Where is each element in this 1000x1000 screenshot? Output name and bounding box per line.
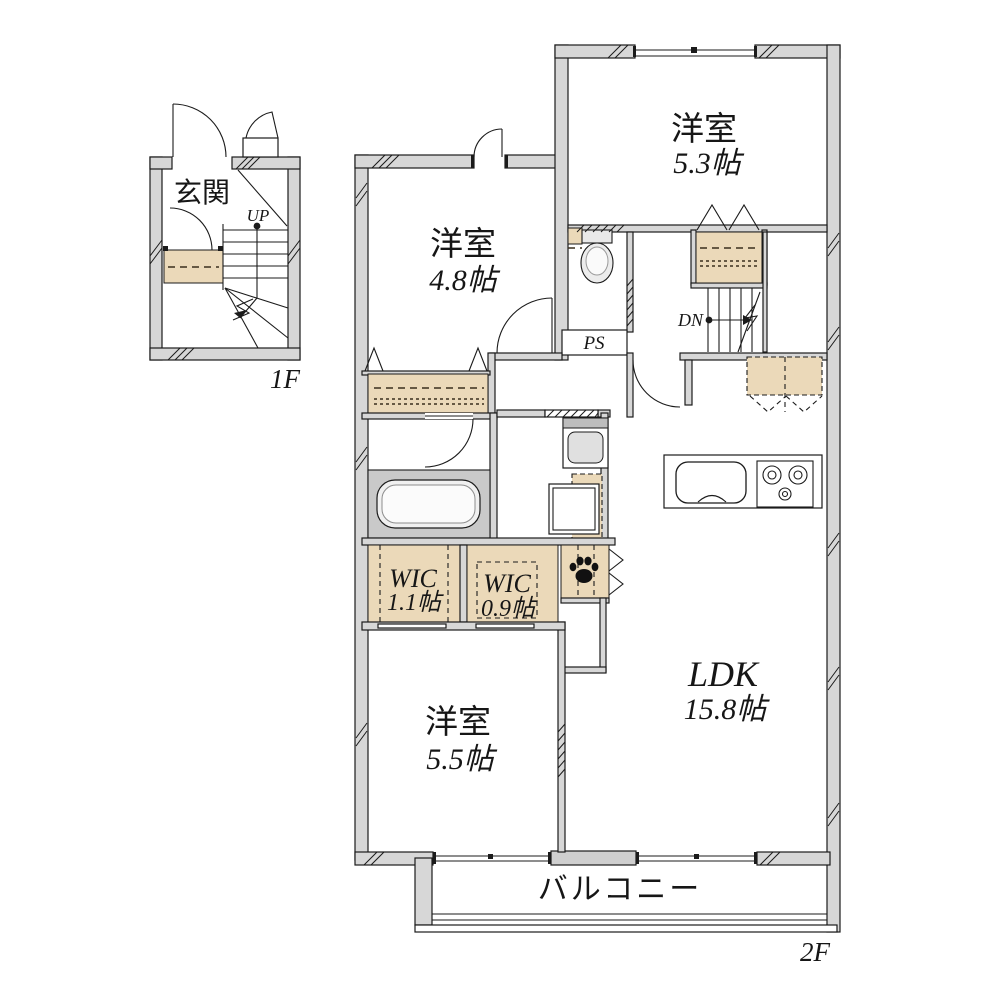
bedroom55-name: 洋室 bbox=[425, 704, 491, 741]
bedroom53-size: 5.3帖 bbox=[673, 147, 745, 180]
dn-arrow-origin-dot bbox=[706, 317, 713, 324]
closet48-folding-doors bbox=[365, 348, 487, 371]
floor-plan-svg: 玄関 UP 1F bbox=[0, 0, 1000, 1000]
2f-wall-mid-vertical bbox=[555, 45, 568, 360]
pet-closet-folding-doors bbox=[609, 549, 623, 595]
room-label-ldk: LDK 15.8帖 bbox=[684, 654, 771, 726]
entrance-door bbox=[173, 104, 226, 157]
1f-wall-bottom bbox=[150, 348, 300, 360]
wic-large-door-sill bbox=[378, 624, 446, 628]
wic-small-door-sill bbox=[476, 624, 534, 628]
stairs-1f bbox=[223, 170, 288, 348]
1f-wall-top-left bbox=[150, 157, 172, 169]
entrance-side-door bbox=[243, 112, 278, 157]
2f-wall-right bbox=[827, 45, 840, 932]
floor-plan-page: 玄関 UP 1F bbox=[0, 0, 1000, 1000]
door-ldk bbox=[633, 360, 680, 407]
wall-hall-top bbox=[490, 353, 562, 360]
room-label-bedroom55: 洋室 5.5帖 bbox=[425, 704, 498, 776]
2f-wall-top-left-b bbox=[505, 155, 557, 168]
2f-wall-top-left-a bbox=[355, 155, 474, 168]
bathroom bbox=[362, 413, 497, 545]
2f-wall-bottom-right bbox=[757, 852, 830, 865]
window-bottom-ldk bbox=[636, 852, 757, 864]
up-label: UP bbox=[247, 206, 270, 225]
door-post bbox=[471, 155, 474, 168]
ldk-size: 15.8帖 bbox=[684, 693, 771, 726]
wic-small-size: 0.9帖 bbox=[481, 595, 538, 622]
floor-1f-label: 1F bbox=[270, 364, 301, 394]
floor-2f-label: 2F bbox=[800, 937, 831, 967]
floor-1f-plan: 玄関 UP 1F bbox=[150, 104, 301, 394]
wic-small-label: WIC bbox=[483, 569, 531, 598]
wall-hall-left bbox=[488, 353, 495, 417]
toilet-shelf bbox=[568, 228, 582, 244]
closet-bedroom48 bbox=[362, 348, 490, 413]
washbasin bbox=[563, 418, 608, 468]
bedroom48-name: 洋室 bbox=[430, 226, 496, 263]
balcony-label: バルコニー bbox=[538, 873, 702, 906]
wall-between-wics bbox=[460, 545, 467, 622]
room-label-bedroom48: 洋室 4.8帖 bbox=[429, 226, 501, 297]
closet-bedroom53 bbox=[691, 205, 767, 288]
toilet-room bbox=[568, 228, 633, 332]
wic-small: WIC 0.9帖 bbox=[467, 545, 558, 622]
window-bottom-bedroom bbox=[433, 852, 551, 864]
washroom bbox=[497, 410, 610, 545]
wic-large-size: 1.1帖 bbox=[387, 589, 444, 616]
door-post bbox=[505, 155, 508, 168]
wall-ldk-stub bbox=[685, 360, 692, 405]
pipe-space: PS bbox=[562, 330, 627, 355]
balcony-sliding-door bbox=[551, 851, 636, 865]
1f-wall-right bbox=[288, 157, 300, 360]
kitchen-counter bbox=[664, 455, 822, 508]
kitchen-sink bbox=[676, 462, 746, 503]
1f-interior-door bbox=[170, 208, 212, 250]
bedroom53-name: 洋室 bbox=[671, 111, 737, 148]
room-label-bedroom53: 洋室 5.3帖 bbox=[671, 111, 745, 180]
washing-machine bbox=[549, 474, 602, 538]
toilet-icon bbox=[581, 230, 613, 283]
bathroom-door bbox=[425, 419, 473, 467]
bedroom55-size: 5.5帖 bbox=[426, 743, 498, 776]
1f-wall-left bbox=[150, 157, 162, 360]
bedroom48-size: 4.8帖 bbox=[429, 264, 501, 297]
balcony-wall-left bbox=[415, 858, 432, 925]
wall-wic-top bbox=[362, 538, 615, 545]
entrance-label: 玄関 bbox=[174, 177, 230, 209]
window-top bbox=[633, 46, 757, 57]
wall-hall-right bbox=[627, 353, 633, 417]
shoe-cabinet bbox=[163, 246, 223, 283]
wic-large: WIC 1.1帖 bbox=[368, 545, 460, 622]
wall-pantry-bottom bbox=[562, 667, 606, 673]
wall-pantry-right bbox=[600, 598, 606, 672]
wic-large-label: WIC bbox=[389, 564, 437, 593]
door-bedroom48 bbox=[497, 298, 552, 353]
ps-label: PS bbox=[582, 333, 605, 354]
2f-wall-top-a bbox=[555, 45, 635, 58]
bathtub bbox=[377, 480, 480, 528]
ldk-name: LDK bbox=[687, 654, 760, 694]
refrigerator-space bbox=[747, 357, 822, 412]
2f-wall-left bbox=[355, 155, 368, 860]
door-bedroom48-top bbox=[474, 129, 502, 157]
floor-2f-plan: PS DN bbox=[355, 45, 840, 967]
balcony-slab bbox=[415, 925, 837, 932]
pet-closet bbox=[561, 545, 623, 603]
dn-label: DN bbox=[677, 310, 704, 330]
